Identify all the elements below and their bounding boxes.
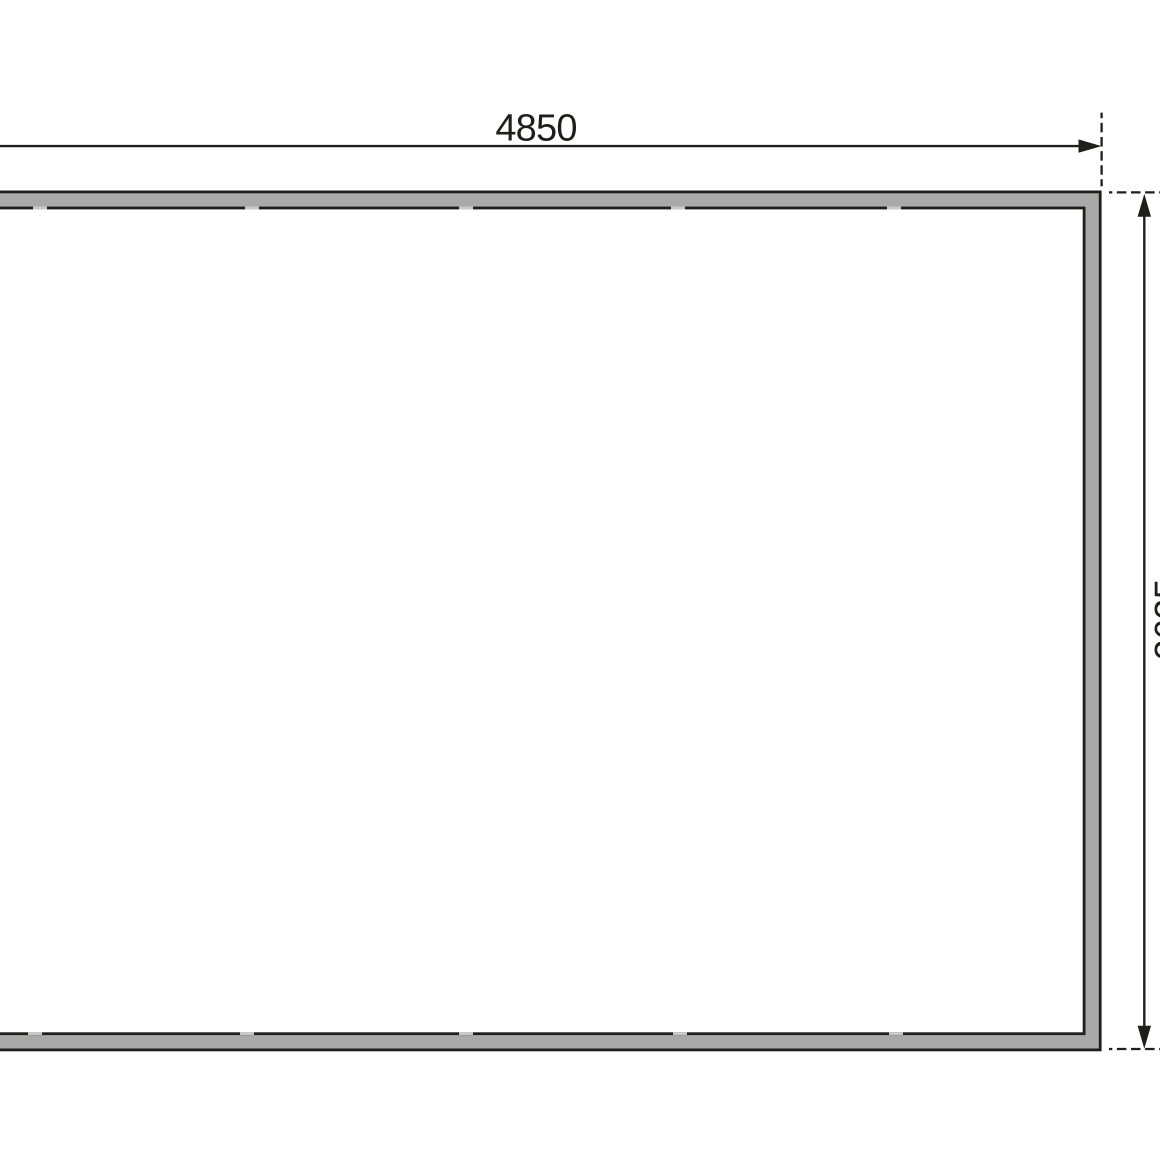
svg-text:2625: 2625 — [1147, 579, 1160, 660]
svg-text:4850: 4850 — [495, 107, 576, 149]
